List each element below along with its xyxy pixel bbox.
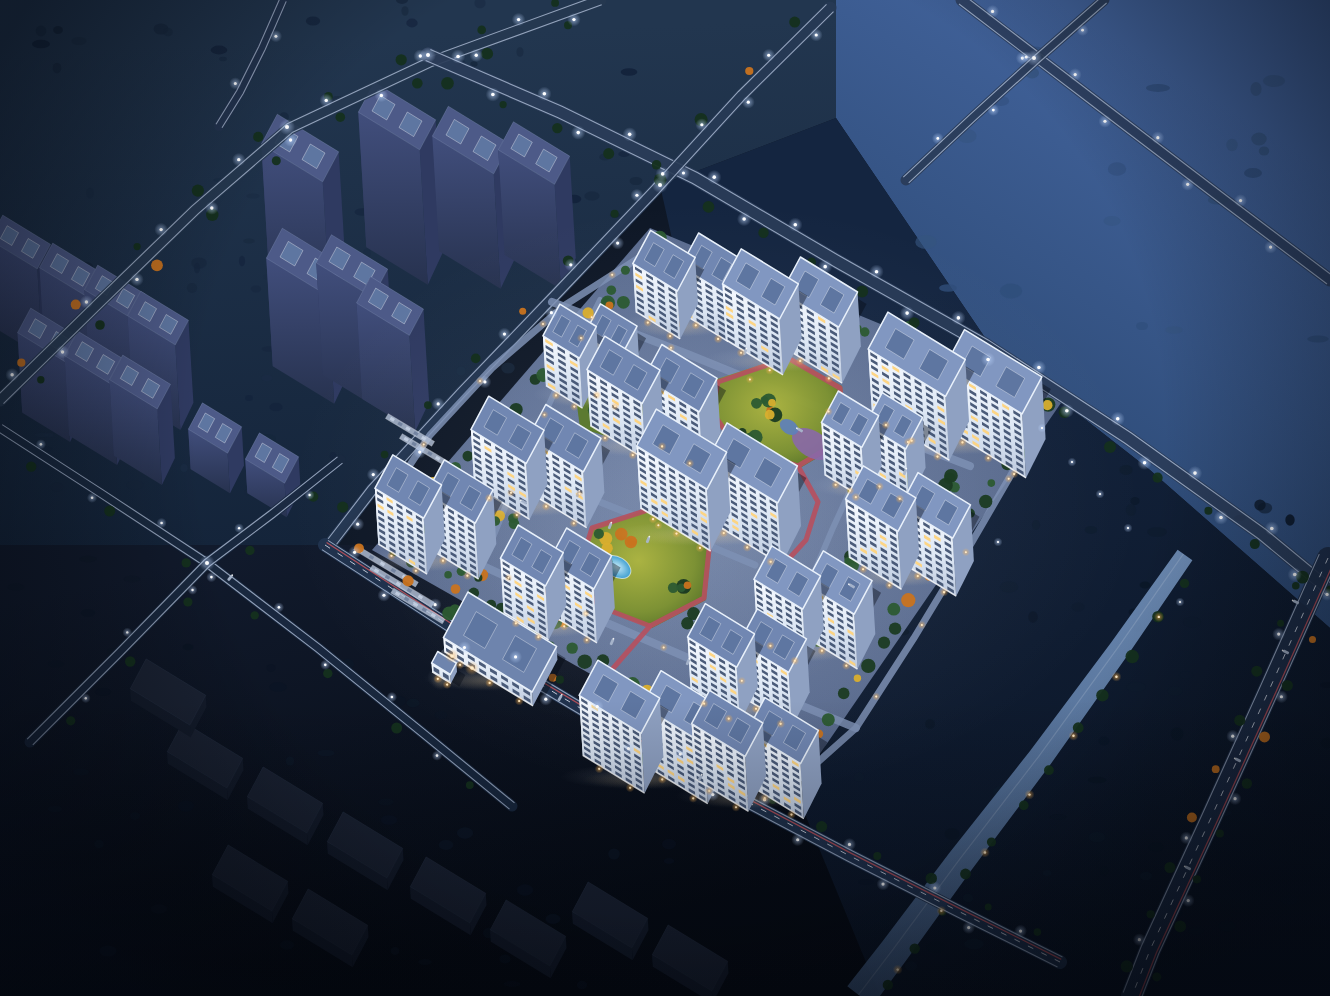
- vignette: [0, 0, 1330, 996]
- atmosphere: [0, 0, 1330, 996]
- aerial-night-rendering: [0, 0, 1330, 996]
- rendering-canvas: [0, 0, 1330, 996]
